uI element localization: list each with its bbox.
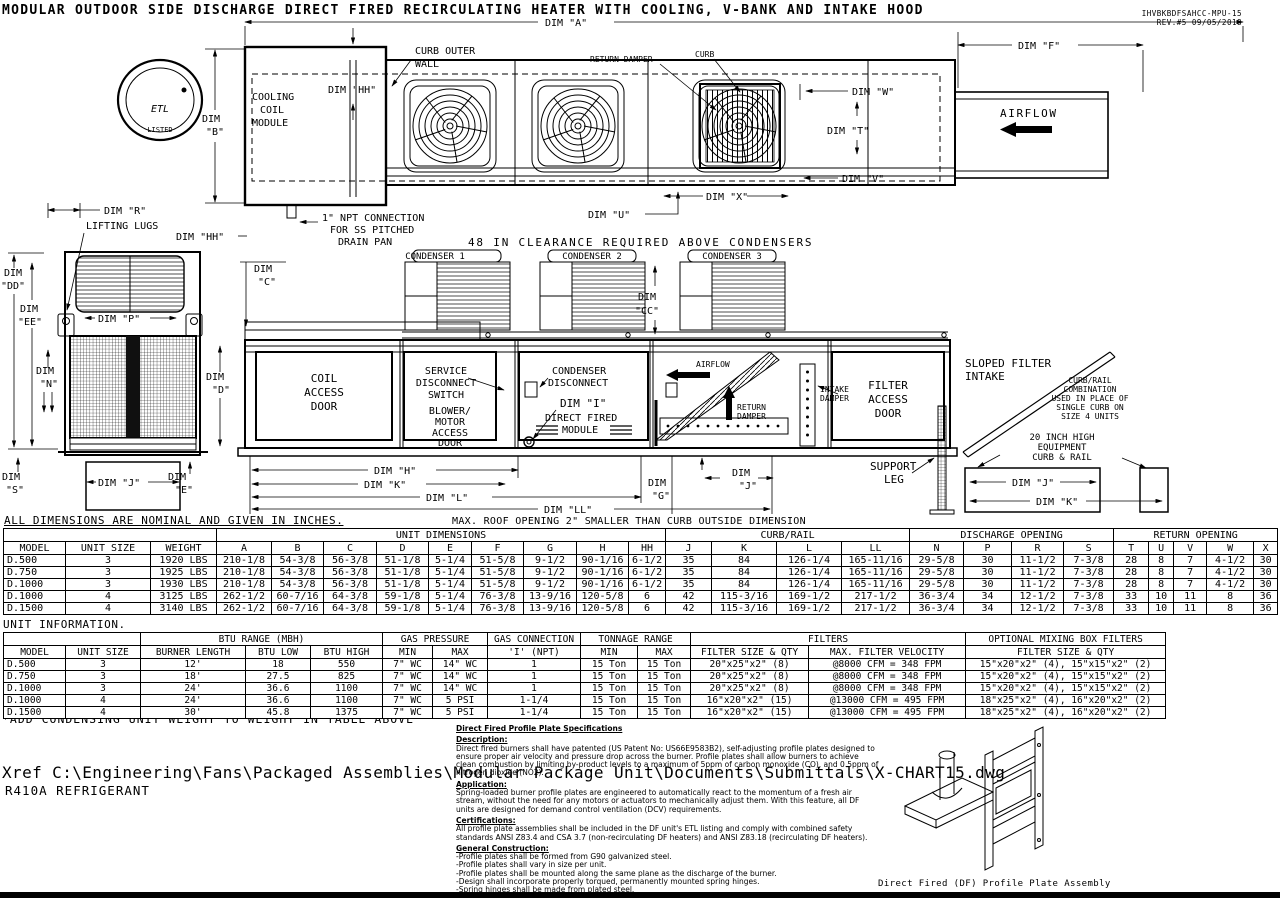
table-cell: 825 [311, 671, 383, 683]
table-cell: 115-3/16 [712, 591, 777, 603]
dim-x-label: DIM "X" [706, 192, 748, 203]
coil-access-door-label: COIL [311, 372, 338, 385]
table-cell: 1920 LBS [151, 555, 217, 567]
table-cell: 3125 LBS [151, 591, 217, 603]
direct-fired-module-label-2: MODULE [562, 425, 598, 436]
table-corner [4, 633, 141, 646]
table-cell: 126-1/4 [777, 579, 842, 591]
table-cell: 3 [66, 579, 151, 591]
table-row: D.1000424'36.611007" WC5 PSI1-1/415 Ton1… [4, 695, 1166, 707]
dim-c-label: DIM [254, 264, 272, 275]
table-cell: D.500 [4, 555, 66, 567]
column-header: N [910, 542, 964, 555]
column-header: C [324, 542, 377, 555]
table-cell: 262-1/2 [217, 603, 272, 615]
dim-s-label-2: "S" [6, 485, 24, 496]
dim-r-label: DIM "R" [104, 206, 146, 217]
table-cell: 5-1/4 [429, 603, 472, 615]
table-cell: 7" WC [383, 659, 433, 671]
table-cell: D.750 [4, 567, 66, 579]
table-cell: 1 [488, 671, 581, 683]
table-cell: 8 [1207, 591, 1254, 603]
service-switch-box [666, 383, 677, 397]
table-cell: 8 [1149, 555, 1174, 567]
table-cell: 9-1/2 [524, 567, 577, 579]
table-cell: 3 [66, 659, 141, 671]
table-cell: 18"x25"x2" (4), 16"x20"x2" (2) [966, 707, 1166, 719]
group-gas-connection: GAS CONNECTION [488, 633, 581, 646]
table-cell: 34 [964, 603, 1012, 615]
table-cell: 36.6 [246, 683, 311, 695]
table-cell: 56-3/8 [324, 555, 377, 567]
table-cell: 12-1/2 [1012, 591, 1064, 603]
service-disconnect-label-3: SWITCH [428, 390, 464, 401]
profile-plate-assembly-drawing [905, 727, 1043, 870]
table-cell: D.1000 [4, 579, 66, 591]
intake-damper-label: INTAKE [820, 385, 849, 394]
table-cell: 11 [1174, 603, 1207, 615]
table-cell: 1925 LBS [151, 567, 217, 579]
table-cell: 5 PSI [433, 707, 488, 719]
group-curb-rail: CURB/RAIL [666, 529, 910, 542]
table-cell: 1 [488, 659, 581, 671]
equipment-curb-note-2: EQUIPMENT [1038, 443, 1087, 453]
table-cell: 56-3/8 [324, 579, 377, 591]
table-cell: 4 [66, 591, 151, 603]
profile-plate-specifications: Direct Fired Profile Plate Specification… [456, 725, 880, 895]
table-row: D.1000324'36.611007" WC14" WC115 Ton15 T… [4, 683, 1166, 695]
column-header: V [1174, 542, 1207, 555]
group-mixing-box-filters: OPTIONAL MIXING BOX FILTERS [966, 633, 1166, 646]
table-cell: 76-3/8 [472, 591, 524, 603]
etl-listed-logo: ETL LISTED [118, 60, 202, 140]
spec-construction-item: -Spring hinges shall be made from plated… [456, 886, 880, 894]
dim-v-label: DIM "V" [842, 174, 884, 185]
equipment-curb-box [965, 468, 1100, 512]
table-cell: 51-1/8 [377, 555, 429, 567]
table-cell: 3140 LBS [151, 603, 217, 615]
dim-n-label-2: "N" [40, 379, 58, 390]
table-cell: 34 [964, 591, 1012, 603]
table-cell: 54-3/8 [272, 579, 324, 591]
table-cell: 28 [1114, 555, 1149, 567]
group-header-row: UNIT DIMENSIONS CURB/RAIL DISCHARGE OPEN… [4, 529, 1278, 542]
column-header: R [1012, 542, 1064, 555]
column-header: MODEL [4, 646, 66, 659]
table-row: D.150043140 LBS262-1/260-7/1664-3/859-1/… [4, 603, 1278, 615]
column-header: UNIT SIZE [66, 542, 151, 555]
table-cell: 30 [1254, 555, 1278, 567]
group-return-opening: RETURN OPENING [1114, 529, 1278, 542]
table-cell: 51-5/8 [472, 567, 524, 579]
column-header: MAX. FILTER VELOCITY [809, 646, 966, 659]
etl-logo-text: ETL [151, 104, 169, 115]
column-header: F [472, 542, 524, 555]
table-cell: 15 Ton [581, 659, 638, 671]
table-cell: 9-1/2 [524, 579, 577, 591]
table-cell: 36 [1254, 591, 1278, 603]
table-cell: 210-1/8 [217, 567, 272, 579]
table-cell: 14" WC [433, 659, 488, 671]
table-cell: 1100 [311, 695, 383, 707]
column-header: HH [629, 542, 666, 555]
equipment-curb-note: 20 INCH HIGH [1029, 433, 1094, 443]
table-cell: 5-1/4 [429, 567, 472, 579]
coil-access-door-label-3: DOOR [311, 400, 338, 413]
table-cell: 60-7/16 [272, 603, 324, 615]
table-cell: 90-1/16 [577, 555, 629, 567]
table-cell: 15 Ton [638, 671, 691, 683]
cooling-coil-module-label-3: MODULE [252, 118, 288, 129]
dim-d-label-2: "D" [212, 385, 230, 396]
column-header: W [1207, 542, 1254, 555]
table-cell: 28 [1114, 579, 1149, 591]
lifting-lugs-label: LIFTING LUGS [86, 221, 158, 232]
table-cell: 30 [964, 555, 1012, 567]
dim-k-label: DIM "K" [364, 480, 406, 491]
table-cell: 4 [66, 603, 151, 615]
table-cell: 15 Ton [581, 695, 638, 707]
unit-information-body: D.500312'185507" WC14" WC115 Ton15 Ton20… [4, 659, 1166, 719]
table-cell: 18' [141, 671, 246, 683]
table-row: D.75031925 LBS210-1/854-3/856-3/851-1/85… [4, 567, 1278, 579]
table-cell: 3 [66, 683, 141, 695]
table-cell: 51-5/8 [472, 579, 524, 591]
table-cell: 5-1/4 [429, 555, 472, 567]
table-cell: 51-1/8 [377, 579, 429, 591]
table-cell: 550 [311, 659, 383, 671]
coil-access-door-label-2: ACCESS [304, 386, 344, 399]
column-header: MAX [433, 646, 488, 659]
curb-outer-wall-label: CURB OUTER [415, 46, 476, 57]
dim-j-side-label: DIM "J" [98, 478, 140, 489]
drawing-sheet: MODULAR OUTDOOR SIDE DISCHARGE DIRECT FI… [0, 0, 1280, 898]
table-cell: 15 Ton [638, 659, 691, 671]
group-header-row: BTU RANGE (MBH) GAS PRESSURE GAS CONNECT… [4, 633, 1166, 646]
table-cell: 28 [1114, 567, 1149, 579]
table-cell: 35 [666, 579, 712, 591]
table-cell: 11 [1174, 591, 1207, 603]
table-cell: 165-11/16 [842, 555, 910, 567]
column-header: MODEL [4, 542, 66, 555]
table-cell: 27.5 [246, 671, 311, 683]
table-cell: 15"x20"x2" (4), 15"x15"x2" (2) [966, 683, 1166, 695]
dim-c-label-2: "C" [258, 277, 276, 288]
table-cell: 169-1/2 [777, 591, 842, 603]
dim-s-label: DIM [2, 472, 20, 483]
dim-dd-label: DIM [4, 268, 22, 279]
table-cell: 15 Ton [638, 707, 691, 719]
table-cell: 15 Ton [581, 707, 638, 719]
column-header: BURNER LENGTH [141, 646, 246, 659]
dim-g-label-2: "G" [652, 491, 670, 502]
condenser-2-label: CONDENSER 2 [562, 252, 622, 262]
unit-dimensions-body: D.50031920 LBS210-1/854-3/856-3/851-1/85… [4, 555, 1278, 615]
dim-p-label: DIM "P" [98, 314, 140, 325]
table-cell: 84 [712, 555, 777, 567]
column-header: T [1114, 542, 1149, 555]
column-header: H [577, 542, 629, 555]
unit-information-table: BTU RANGE (MBH) GAS PRESSURE GAS CONNECT… [3, 632, 1166, 719]
table-cell: 59-1/8 [377, 603, 429, 615]
table-cell: 15 Ton [581, 671, 638, 683]
npt-connection-note-3: DRAIN PAN [338, 237, 392, 248]
group-gas-pressure: GAS PRESSURE [383, 633, 488, 646]
table-cell: 42 [666, 603, 712, 615]
table-cell: 8 [1149, 579, 1174, 591]
table-cell: 6-1/2 [629, 579, 666, 591]
support-leg-label: SUPPORT [870, 460, 917, 473]
spec-application: Spring-loaded burner profile plates are … [456, 789, 880, 814]
table-cell: 4 [66, 695, 141, 707]
column-header: UNIT SIZE [66, 646, 141, 659]
table-cell: 30 [1254, 567, 1278, 579]
table-cell: D.750 [4, 671, 66, 683]
table-cell: 7-3/8 [1064, 591, 1114, 603]
table-cell: 30 [1254, 579, 1278, 591]
table-cell: 7 [1174, 555, 1207, 567]
column-header: FILTER SIZE & QTY [691, 646, 809, 659]
table-cell: 7" WC [383, 707, 433, 719]
table-cell: 24' [141, 695, 246, 707]
table-cell: 115-3/16 [712, 603, 777, 615]
table-cell: 15"x20"x2" (4), 15"x15"x2" (2) [966, 671, 1166, 683]
table-cell: 4 [66, 707, 141, 719]
dim-i-label: DIM "I" [560, 397, 606, 410]
dim-u-label: DIM "U" [588, 210, 630, 221]
table-cell: 33 [1114, 591, 1149, 603]
column-header: X [1254, 542, 1278, 555]
table-cell: 90-1/16 [577, 567, 629, 579]
table-cell: 90-1/16 [577, 579, 629, 591]
table-cell: 1100 [311, 683, 383, 695]
table-cell: 42 [666, 591, 712, 603]
table-cell: 126-1/4 [777, 555, 842, 567]
column-header: P [964, 542, 1012, 555]
table-cell: 6-1/2 [629, 567, 666, 579]
table-cell: 24' [141, 683, 246, 695]
table-row: D.500312'185507" WC14" WC115 Ton15 Ton20… [4, 659, 1166, 671]
table-cell: 45.8 [246, 707, 311, 719]
table-cell: 7 [1174, 567, 1207, 579]
table-cell: 120-5/8 [577, 603, 629, 615]
table-cell: 6-1/2 [629, 555, 666, 567]
dim-w-label: DIM "W" [852, 87, 894, 98]
cooling-coil-module-label: COOLING [252, 92, 294, 103]
table-cell: 3 [66, 555, 151, 567]
condenser-disconnect-label-2: DISCONNECT [548, 378, 608, 389]
table-cell: 5-1/4 [429, 579, 472, 591]
table-cell: 4-1/2 [1207, 567, 1254, 579]
dim-j-curb-label: DIM "J" [1012, 478, 1054, 489]
dim-cc-label: DIM [638, 292, 656, 303]
condenser-disconnect-switch [525, 382, 537, 397]
table-cell: 20"x25"x2" (8) [691, 659, 809, 671]
table-cell: 54-3/8 [272, 555, 324, 567]
table-cell: 217-1/2 [842, 591, 910, 603]
table-cell: 6 [629, 591, 666, 603]
table-cell: 36.6 [246, 695, 311, 707]
dim-n-label: DIM [36, 366, 54, 377]
table-cell: 120-5/8 [577, 591, 629, 603]
table-cell: 1 [488, 683, 581, 695]
group-discharge-opening: DISCHARGE OPENING [910, 529, 1114, 542]
max-roof-opening-note: MAX. ROOF OPENING 2" SMALLER THAN CURB O… [452, 516, 806, 527]
elev-return-damper-label-2: DAMPER [737, 412, 766, 421]
elev-airflow-label: AIRFLOW [696, 360, 730, 369]
table-cell: 169-1/2 [777, 603, 842, 615]
column-header: S [1064, 542, 1114, 555]
table-cell: 11-1/2 [1012, 567, 1064, 579]
table-cell: 29-5/8 [910, 567, 964, 579]
support-leg-label-2: LEG [884, 473, 904, 486]
table-cell: 20"x25"x2" (8) [691, 671, 809, 683]
table-cell: 10 [1149, 603, 1174, 615]
dim-hh-plan-label: DIM "HH" [328, 85, 376, 96]
table-cell: 11-1/2 [1012, 555, 1064, 567]
dim-ee-label-2: "EE" [18, 317, 42, 328]
table-cell: 15 Ton [638, 683, 691, 695]
column-header: FILTER SIZE & QTY [966, 646, 1166, 659]
dim-d-label: DIM [206, 372, 224, 383]
table-cell: 18 [246, 659, 311, 671]
column-header: MAX [638, 646, 691, 659]
group-filters: FILTERS [691, 633, 966, 646]
table-cell: D.1000 [4, 695, 66, 707]
dim-l-label: DIM "L" [426, 493, 468, 504]
table-cell: 7" WC [383, 671, 433, 683]
column-header: WEIGHT [151, 542, 217, 555]
table-cell: 29-5/8 [910, 555, 964, 567]
table-cell: 64-3/8 [324, 603, 377, 615]
side-view: DIM "R" LIFTING LUGS DIM "HH" DIM "DD" D… [1, 203, 247, 510]
table-cell: D.500 [4, 659, 66, 671]
table-cell: @8000 CFM = 348 FPM [809, 683, 966, 695]
table-cell: 14" WC [433, 671, 488, 683]
dim-e-label-2: "E" [175, 485, 193, 496]
table-cell: 7" WC [383, 695, 433, 707]
direct-fired-module-label: DIRECT FIRED [545, 413, 617, 424]
table-row: D.100031930 LBS210-1/854-3/856-3/851-1/8… [4, 579, 1278, 591]
dimensions-note: ALL DIMENSIONS ARE NOMINAL AND GIVEN IN … [4, 514, 343, 527]
table-cell: @13000 CFM = 495 FPM [809, 695, 966, 707]
column-header: D [377, 542, 429, 555]
dim-cc-label-2: "CC" [635, 306, 659, 317]
table-cell: 30 [964, 579, 1012, 591]
table-cell: 84 [712, 579, 777, 591]
table-cell: @8000 CFM = 348 FPM [809, 659, 966, 671]
table-cell: 10 [1149, 591, 1174, 603]
table-row: D.750318'27.58257" WC14" WC115 Ton15 Ton… [4, 671, 1166, 683]
group-unit-dimensions: UNIT DIMENSIONS [217, 529, 666, 542]
table-cell: 76-3/8 [472, 603, 524, 615]
curb-rail-note-5: SIZE 4 UNITS [1061, 412, 1119, 421]
column-header: G [524, 542, 577, 555]
dim-ll-label: DIM "LL" [544, 505, 592, 516]
table-cell: 13-9/16 [524, 591, 577, 603]
table-cell: 15"x20"x2" (4), 15"x15"x2" (2) [966, 659, 1166, 671]
filter-access-door-label-3: DOOR [875, 407, 902, 420]
unit-information-label: UNIT INFORMATION. [3, 618, 126, 631]
elevation-view: CONDENSER 1 CONDENSER 2 CONDENSER 3 DIM … [238, 250, 1168, 527]
table-cell: 18"x25"x2" (4), 16"x20"x2" (2) [966, 695, 1166, 707]
dim-f-label: DIM "F" [1018, 41, 1060, 52]
filter-access-door-label: FILTER [868, 379, 908, 392]
table-cell: 36-3/4 [910, 603, 964, 615]
elev-return-damper-label: RETURN [737, 403, 766, 412]
column-header: B [272, 542, 324, 555]
table-cell: 16"x20"x2" (15) [691, 707, 809, 719]
column-header: 'I' (NPT) [488, 646, 581, 659]
table-cell: 12-1/2 [1012, 603, 1064, 615]
dim-e-label: DIM [168, 472, 186, 483]
table-cell: 15 Ton [581, 683, 638, 695]
etl-listed-text: LISTED [147, 126, 172, 134]
refrigerant-note: R410A REFRIGERANT [5, 783, 150, 798]
column-header: E [429, 542, 472, 555]
column-header: J [666, 542, 712, 555]
table-cell: 8 [1207, 603, 1254, 615]
filter-access-door-label-2: ACCESS [868, 393, 908, 406]
dim-k-curb-label: DIM "K" [1036, 497, 1078, 508]
table-cell: 8 [1149, 567, 1174, 579]
dim-b-label-2: "B" [206, 127, 224, 138]
table-cell: 51-1/8 [377, 567, 429, 579]
table-cell: 1930 LBS [151, 579, 217, 591]
column-header: BTU LOW [246, 646, 311, 659]
table-cell: 7 [1174, 579, 1207, 591]
group-tonnage-range: TONNAGE RANGE [581, 633, 691, 646]
npt-connection-note-2: FOR SS PITCHED [330, 225, 414, 236]
table-cell: 217-1/2 [842, 603, 910, 615]
equipment-rail-box [1140, 468, 1168, 512]
column-header-row: MODEL UNIT SIZE WEIGHT A B C D E F G H H… [4, 542, 1278, 555]
table-cell: D.1000 [4, 683, 66, 695]
table-cell: 165-11/16 [842, 567, 910, 579]
table-cell: 7-3/8 [1064, 567, 1114, 579]
table-cell: 126-1/4 [777, 567, 842, 579]
curb-rail-note-4: SINGLE CURB ON [1056, 403, 1124, 412]
table-cell: 20"x25"x2" (8) [691, 683, 809, 695]
table-cell: 1-1/4 [488, 707, 581, 719]
table-cell: 262-1/2 [217, 591, 272, 603]
condenser-2-icon [540, 250, 645, 330]
profile-plate-caption: Direct Fired (DF) Profile Plate Assembly [878, 879, 1111, 889]
dim-j-bottom-label-2: "J" [739, 481, 757, 492]
table-row: D.100043125 LBS262-1/260-7/1664-3/859-1/… [4, 591, 1278, 603]
curb-rail-note-2: COMBINATION [1064, 385, 1117, 394]
table-cell: 29-5/8 [910, 579, 964, 591]
table-cell: D.1500 [4, 603, 66, 615]
xref-path: Xref C:\Engineering\Fans\Packaged Assemb… [2, 763, 1005, 782]
curb-label: CURB [695, 50, 714, 59]
dim-g-label: DIM [648, 478, 666, 489]
table-cell: 35 [666, 567, 712, 579]
curb-outer-wall-label-2: WALL [415, 59, 439, 70]
table-cell: 7-3/8 [1064, 555, 1114, 567]
column-header: A [217, 542, 272, 555]
table-cell: 210-1/8 [217, 579, 272, 591]
sloped-filter-intake-label: SLOPED FILTER [965, 357, 1051, 370]
table-cell: 59-1/8 [377, 591, 429, 603]
condenser-1-label: CONDENSER 1 [405, 252, 465, 262]
column-header-row: MODEL UNIT SIZE BURNER LENGTH BTU LOW BT… [4, 646, 1166, 659]
table-cell: 35 [666, 555, 712, 567]
table-cell: 30' [141, 707, 246, 719]
sloped-filter-intake-label-2: INTAKE [965, 370, 1005, 383]
table-cell: 7-3/8 [1064, 603, 1114, 615]
dim-b-label: DIM [202, 114, 220, 125]
